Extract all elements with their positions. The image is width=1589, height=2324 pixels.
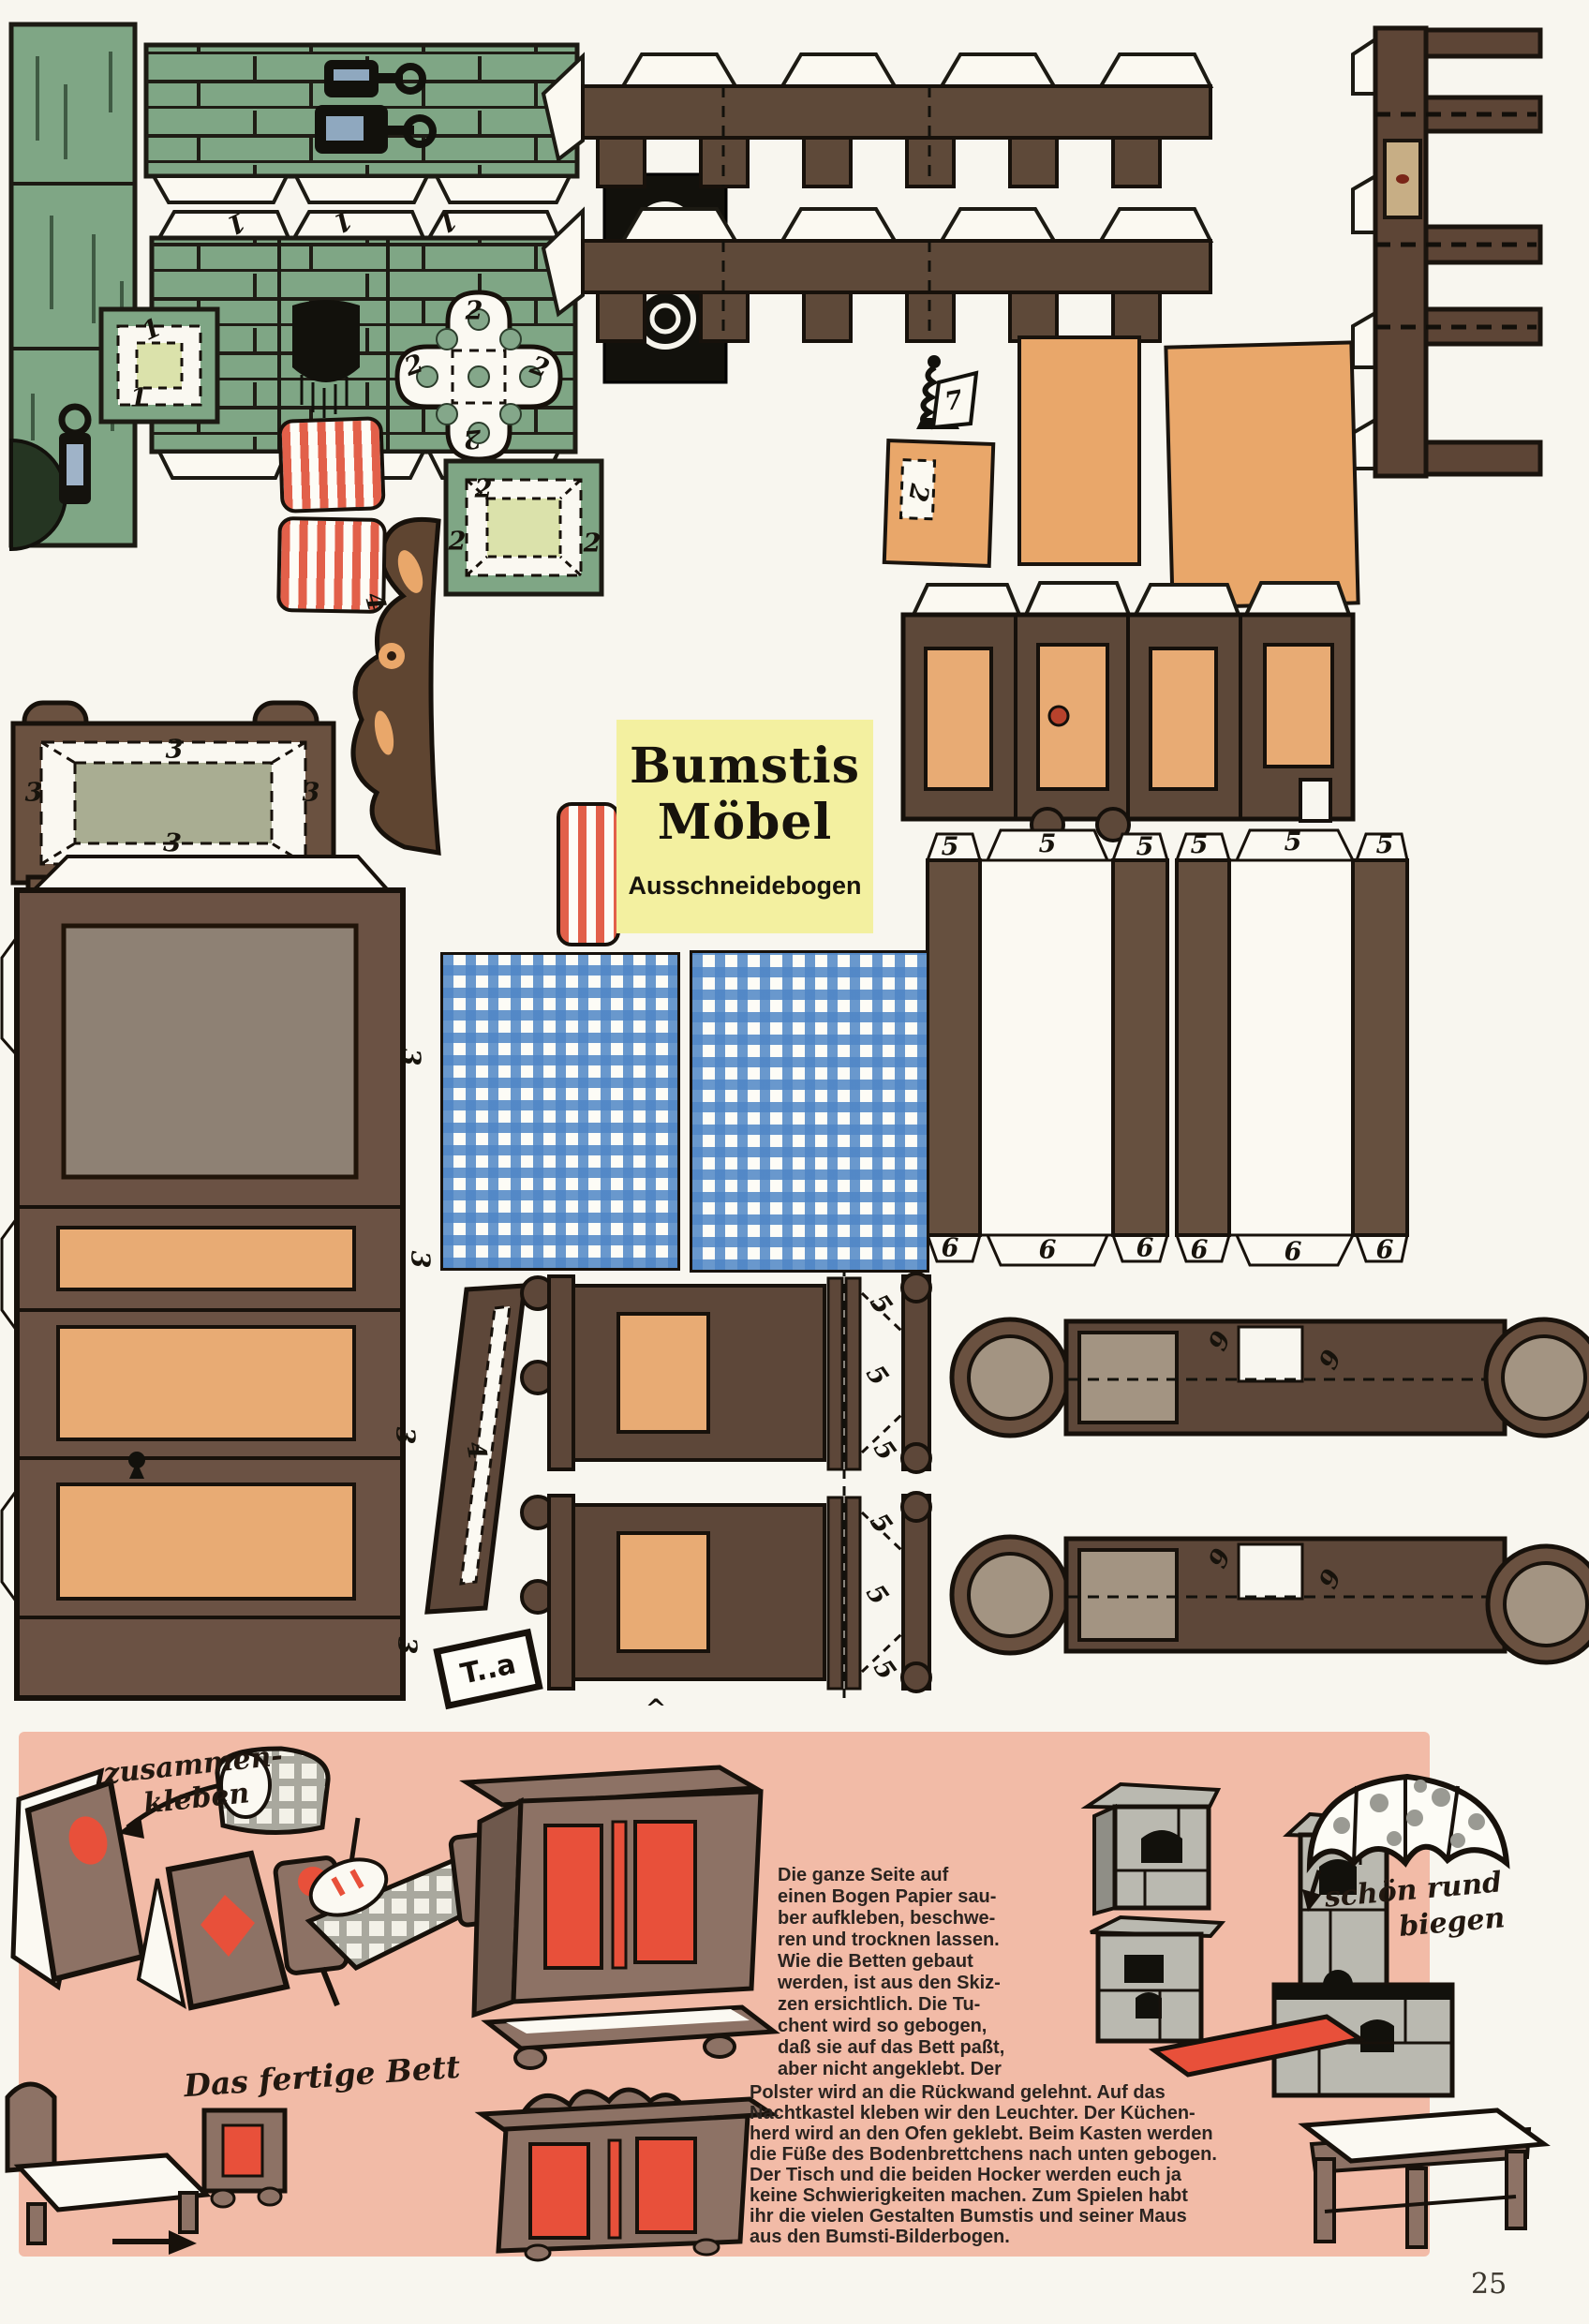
sheet-title-line-1: Bumstis [616,738,873,795]
piece-number-label: 2 [466,297,483,326]
stool-seat-square-piece-2 [446,461,601,594]
cutout-sheet-page: Bumstis Möbel Ausschneidebogen T..a zusa… [0,0,1589,2324]
gingham-fabric-piece-1 [440,952,680,1271]
piece-number-label: 2 [449,528,467,557]
piece-number-label: 6 [1039,1236,1057,1265]
box-template-piece-1 [928,830,1167,1265]
piece-number-label: 6 [942,1234,959,1263]
piece-number-label: 6 [1376,1236,1394,1265]
piece-number-label: 6 [1136,1234,1154,1263]
stove-band-piece [146,45,577,202]
sheet-subtitle: Ausschneidebogen [616,871,873,901]
table-leg-strip-piece-2 [543,209,1210,341]
wardrobe-wrap-piece [2,857,403,1698]
striped-pillow-piece-3 [557,802,620,946]
piece-number-label: 3 [303,779,320,808]
bed-side-rail-piece [1353,28,1540,476]
piece-number-label: 5 [1191,831,1209,860]
table-leg-strip-piece-1 [543,54,1210,186]
piece-number-label: 5 [1136,833,1154,862]
piece-number-label: 3 [162,828,182,859]
piece-number-label: 3 [406,1251,435,1269]
sofa-rail-piece-2 [952,1537,1589,1662]
piece-number-label: 5 [1285,828,1302,857]
page-number: 25 [1471,2268,1507,2301]
title-box: Bumstis Möbel Ausschneidebogen [616,720,873,933]
instructions-column-wide: Polster wird an die Rückwand gelehnt. Au… [750,2082,1375,2247]
piece-number-label: 2 [475,475,493,504]
piece-number-label: 5 [1039,830,1057,859]
sheet-title-line-2: Möbel [616,795,873,851]
box-template-piece-2 [1177,830,1407,1265]
piece-number-label: ^ [646,1695,667,1724]
nightstand-wrap-piece [903,583,1353,841]
gingham-fabric-piece-2 [690,950,929,1273]
piece-number-label: 3 [391,1427,420,1445]
piece-number-label: 2 [462,424,482,454]
piece-number-label: 3 [393,1637,422,1655]
cupboard-side-plank-piece [11,24,135,549]
instructions-column-narrow: Die ganze Seite auf einen Bogen Papier s… [778,1865,1122,2080]
piece-number-label: 3 [396,1049,425,1066]
piece-number-label: 1 [130,384,148,413]
piece-number-label: 6 [1285,1238,1302,1267]
piece-number-label: 5 [1376,831,1394,860]
piece-number-label: 3 [166,736,184,765]
sofa-rail-piece-1 [952,1319,1589,1436]
piece-number-label: 5 [942,833,959,862]
piece-number-label: 2 [584,529,601,559]
printers-stamp-label: T..a [458,1647,519,1691]
piece-number-label: 3 [25,779,43,808]
piece-number-label: 6 [1191,1236,1209,1265]
striped-pillow-piece-1 [277,416,385,514]
